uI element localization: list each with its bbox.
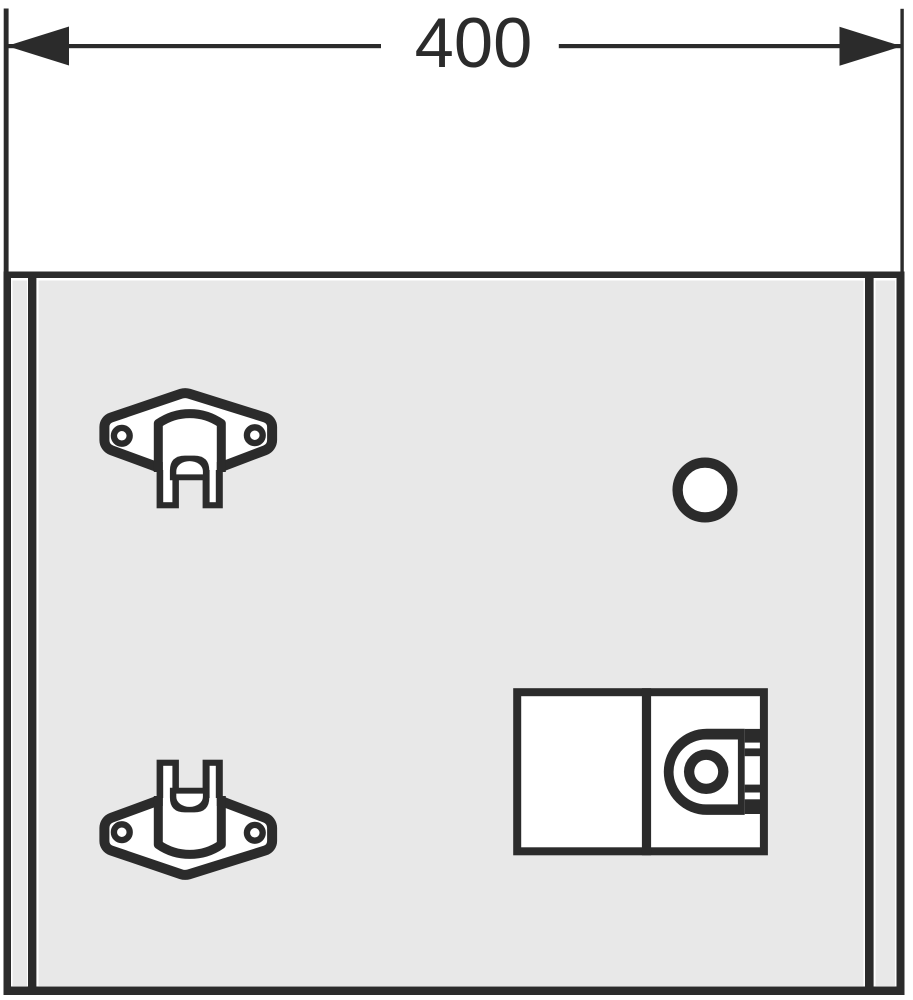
svg-text:400: 400 [415,3,533,82]
